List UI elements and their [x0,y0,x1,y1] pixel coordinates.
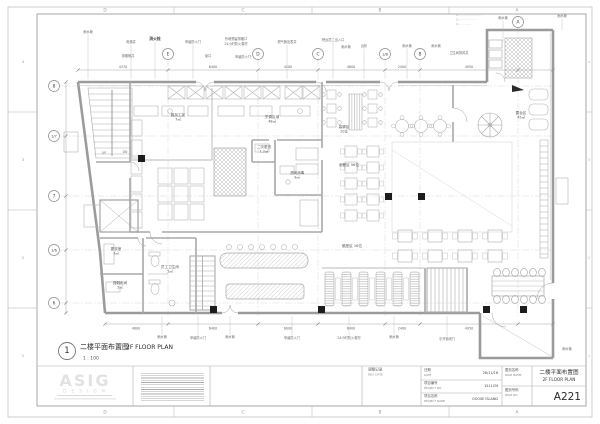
grid-bubble-label: B [418,52,421,58]
room-label: 粗加工区 [171,112,186,117]
page-title-cn: 二楼平面布置图 [539,368,579,376]
zone-letter-bottom: B [379,410,382,416]
drawing-title-en: 2F FLOOR PLAN [126,344,173,351]
project-no-label-en: PROJECT NO. [424,386,442,390]
room-area-label: 5㎡ [167,269,173,274]
dim-value-bottom: 6400 [347,327,355,331]
booth-bench [393,272,402,306]
drawing-sheet: DDCCBBAA44332211 [0,0,600,424]
project-no-value: 1511CM [484,384,498,388]
page-name-label-en: PAGE NAME [505,373,522,377]
sheet-number: A221 [554,391,581,403]
grid-bubble-label: 6 [53,301,56,307]
project-name-label-en: PROJECT NAME [424,399,445,403]
room-label: 高脚区 [339,124,350,129]
room-label: 更衣室 [111,246,122,251]
room-label: 二次更衣 [257,144,272,149]
date-label-cn: 日期 [424,367,431,372]
column [318,306,325,313]
page-no-label-cn: 图页号码 [505,387,519,392]
zone-letter-top: C [241,8,244,14]
drawing-scale: 1 : 100 [83,356,99,362]
terrace-note-line: 4.·············· [456,22,471,26]
booth-bench [359,272,368,306]
callout-top: 窗口 [205,53,211,58]
callout-top: 雨水管 [557,13,567,18]
kitchen-island [214,148,246,196]
project-no-label-cn: 项目编号 [424,380,438,385]
booth-bench [325,272,334,306]
callout-top: 电梯井 [126,39,136,44]
zone-letter-top: B [379,8,382,14]
room-area-label: 3㎡ [113,251,119,256]
callout-bottom: 甲级防火门 [284,335,300,340]
room-label: 散座区 16位 [342,243,362,248]
page-title-en: 2F FLOOR PLAN [543,377,576,382]
room-label: 员工卫生间 [161,264,179,269]
callout-top: 消火栓 [149,36,161,41]
grid-bubble-label: A [516,20,519,26]
callout-top: 雨水管 [341,44,351,49]
dim-value-bottom: 6400 [209,327,217,331]
column [520,306,527,313]
booth-bench [410,272,419,306]
column [210,306,217,313]
date-value: 26/11/16 [483,371,498,375]
dim-value-bottom: 4950 [465,327,473,331]
zone-letter-bottom: A [516,410,519,416]
dim-value-top: 4800 [347,65,355,69]
general-notes-text [141,373,204,401]
room-label: 洗碗消毒 [290,170,305,175]
dim-value-top: 4950 [465,65,473,69]
logo-name: ASIG [60,371,111,390]
zone-letter-top: A [516,8,519,14]
callout-top: 排烟管井 [122,53,135,58]
room-area-label: 5㎡ [117,285,123,290]
stair-direction-label: DN [123,150,128,154]
terrace-note-line: 3.···················· [456,17,477,21]
spiral-stair [478,113,502,137]
dim-value-top: 2400 [398,65,406,69]
callout-top: 24小时防火卷帘 [224,41,247,46]
callout-top: 甲级防火门 [185,39,201,44]
dim-value-top: 4200 [284,65,292,69]
grid-bubble-label: 1/7 [51,135,56,139]
dim-value-top: 6400 [209,65,217,69]
zone-number-right: 4 [588,60,590,64]
room-label: 强弱电间 [113,280,128,285]
callout-top: 台阶 [361,43,368,48]
grid-bubble-label: 8 [53,84,56,90]
callout-top: 雨水管 [402,43,412,48]
room-area-label: 48㎡ [268,119,276,124]
zone-number-right: 2 [588,256,590,260]
room-area-label: 9㎡ [294,175,300,180]
date-label-en: DATE [424,373,432,377]
logo-address-line [58,395,112,396]
column [138,155,145,162]
grid-bubble-label: 7 [53,194,56,200]
zone-number-right: 3 [588,158,590,162]
drawing-title-cn: 二楼平面布置图 [80,342,129,351]
booth-bench [342,272,351,306]
callout-top: 雨水管 [431,43,441,48]
column [385,193,392,200]
firm-logo: ASIG D E S I G N [54,371,116,399]
callout-top: 外墙预留排烟口 [225,36,247,41]
callout-bottom: 平开锁闭门 [439,336,455,341]
room-label: 烹调区域 [265,114,280,119]
room-area-label: 20位 [340,129,348,134]
room-area-label: 7㎡ [175,117,181,122]
dim-value-bottom: 4600 [132,327,140,331]
grid-bubble-label: 1/6 [51,249,56,253]
callout-bottom: 24小时防火卷帘 [337,335,360,340]
room-label: 用餐区 56位 [339,162,359,167]
booth-bench [376,272,385,306]
grid-bubble-label: C [316,52,319,58]
room-label: 露台区 [516,110,527,115]
callout-top: 吧台员工出入口 [322,37,344,42]
dim-value-bottom: 6000 [284,327,292,331]
page-name-label-cn: 图页名称 [505,367,519,372]
zone-letter-bottom: C [241,410,244,416]
callout-bottom: 雨水管 [225,334,235,339]
callout-bottom: 雨水管 [157,334,167,339]
dim-value-top: 4370 [119,65,127,69]
drawing-number: 1 [64,346,69,356]
room-area-label: 1.2㎡ [260,149,269,154]
zone-number-right: 1 [588,354,590,358]
room-area-label: 45㎡ [517,115,525,120]
grid-bubble-label: 1/B [382,53,388,57]
grid-bubble-label: E [167,52,170,58]
callout-bottom: 雨水管 [562,346,572,351]
callout-top: 卫生间排风井 [449,50,468,55]
floor-plan-canvas: DDCCBBAA44332211 [0,0,600,424]
callout-bottom: 雨水管 [389,334,399,339]
rev-label-en: REV. DATE [368,373,383,377]
dim-value-bottom: 2400 [398,327,406,331]
column [483,306,490,313]
stair-direction-label: UP [102,151,106,155]
logo-contact-line [54,399,116,400]
callout-top: 燃气管及表井 [277,39,296,44]
logo-sub: D E S I G N [63,389,107,394]
column [418,193,425,200]
callout-bottom: 甲级防火门 [190,335,206,340]
page-no-label-en: PAGE NO. [505,393,518,397]
project-name-value: GOOSE ISLAND [472,397,498,401]
project-name-label-cn: 项目名称 [424,393,438,398]
rev-label-cn: 调整记录 [368,367,383,372]
terrace-note-line: 2.·························· [456,13,482,17]
callout-top: 雨水管 [498,15,508,20]
callout-top: 甲级防火门 [235,54,251,59]
callout-top: 雨水管 [83,29,93,34]
